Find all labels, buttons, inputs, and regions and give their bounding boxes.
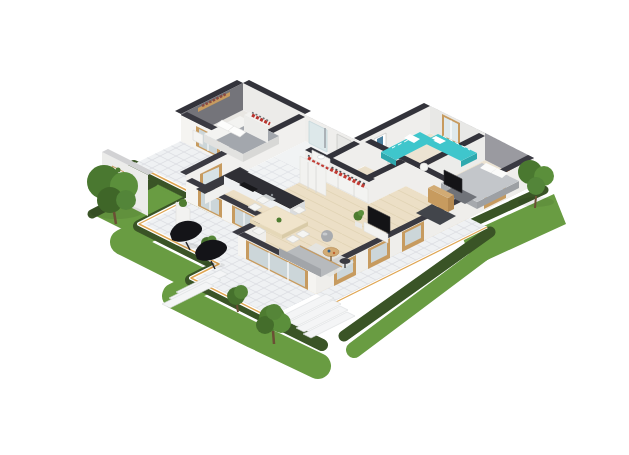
terrace-tree-small-trunk	[237, 305, 238, 312]
kitchen-faucet	[271, 194, 273, 196]
coffee-decor-2	[333, 252, 335, 254]
terrace-tree-small-2	[234, 285, 248, 299]
bedroom-dresser-side	[448, 195, 454, 212]
bathroom-sink	[318, 155, 325, 159]
coffee-decor-1	[328, 250, 331, 253]
tree-right-trunk	[535, 196, 536, 208]
pillar-plant	[179, 199, 187, 207]
plant-leaves-2	[358, 210, 364, 216]
tree-right-canopy-3	[527, 177, 545, 195]
floorplan-stage	[0, 0, 629, 455]
coffee-table-1	[323, 248, 339, 257]
tree-round-4	[266, 304, 282, 320]
kids-table	[420, 163, 428, 171]
pouf	[321, 230, 333, 242]
tree-round-trunk	[273, 331, 274, 344]
pouf-highlight	[323, 233, 328, 236]
tree-left-canopy-4	[116, 190, 136, 210]
coffee-table-2	[340, 258, 351, 264]
floorplan-svg	[0, 0, 629, 455]
dining-centerpiece	[277, 218, 282, 223]
